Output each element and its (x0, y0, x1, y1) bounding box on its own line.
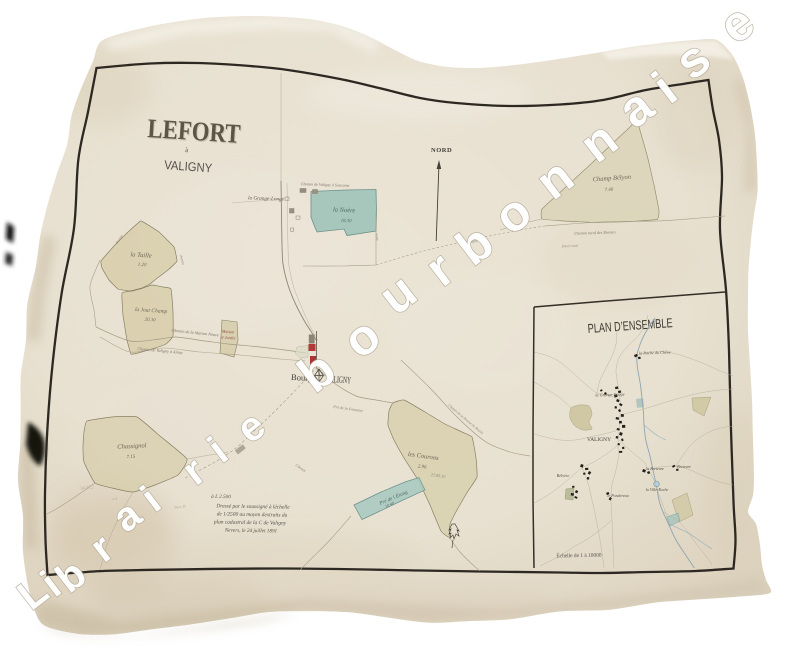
svg-text:Breteure: Breteure (677, 464, 691, 469)
svg-text:la Grange-Longe: la Grange-Longe (248, 195, 285, 202)
svg-text:à L 2.500: à L 2.500 (211, 494, 231, 500)
svg-text:7.40: 7.40 (604, 188, 614, 194)
svg-text:VALIGNY: VALIGNY (587, 437, 611, 443)
svg-text:LEFORT: LEFORT (147, 113, 242, 149)
svg-text:20.30: 20.30 (144, 318, 156, 324)
svg-text:de 1/2500 au moyen dextraits d: de 1/2500 au moyen dextraits du (217, 511, 288, 518)
svg-text:Bélvère: Bélvère (557, 473, 570, 478)
svg-text:NORD: NORD (431, 147, 452, 154)
svg-text:Maison: Maison (221, 329, 235, 335)
svg-text:la Taille: la Taille (130, 251, 152, 259)
svg-text:18.30: 18.30 (341, 219, 353, 225)
svg-text:fossé rural: fossé rural (562, 244, 578, 249)
svg-text:la Noère: la Noère (333, 206, 356, 214)
svg-text:la Breteure: la Breteure (646, 466, 664, 471)
svg-text:la Grange-Rouge: la Grange-Rouge (595, 391, 624, 397)
svg-text:1.20: 1.20 (137, 263, 147, 269)
svg-text:le Pondereau: le Pondereau (607, 493, 628, 498)
svg-text:et Jardin: et Jardin (221, 334, 236, 340)
svg-text:Nevers, le 24 juillet 1891: Nevers, le 24 juillet 1891 (224, 527, 278, 535)
svg-text:7.15: 7.15 (126, 455, 135, 460)
svg-text:14.37.2: 14.37.2 (80, 484, 95, 490)
svg-text:la Ville-Roche: la Ville-Roche (646, 487, 669, 492)
